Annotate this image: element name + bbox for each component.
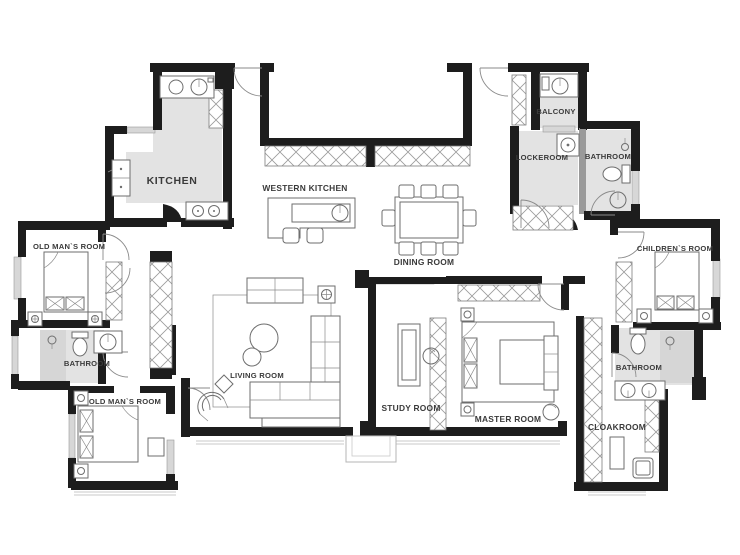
- window: [713, 259, 720, 299]
- stove-icon: [186, 202, 228, 220]
- floor-plan-canvas: KITCHEN WESTERN KITCHEN DINING ROOM OLD …: [0, 0, 740, 555]
- window-sill: [74, 492, 176, 495]
- cabinet-hatch: [375, 146, 470, 166]
- window: [632, 168, 639, 206]
- room-label-bathroom-right: BATHROOM: [616, 363, 662, 372]
- kitchen-counter-icon: [160, 76, 214, 98]
- window: [167, 440, 174, 476]
- door-arc: [538, 284, 564, 310]
- cloakroom-left-wardrobe: [584, 318, 602, 482]
- tv-bench-icon: [544, 336, 558, 390]
- living-room-furniture: [198, 278, 340, 427]
- room-label-master-room: MASTER ROOM: [475, 414, 542, 424]
- cabinet-hatch: [265, 146, 366, 166]
- old-mans-top-bed-icon: [28, 252, 102, 326]
- balcony-cabinet: [512, 75, 526, 125]
- bathroom-left-shower-floor: [40, 330, 66, 383]
- room-label-kitchen: KITCHEN: [147, 175, 198, 187]
- door-arc: [480, 68, 508, 96]
- window: [543, 126, 575, 132]
- window: [69, 414, 75, 458]
- room-label-childrens-room: CHILDREN`S ROOM: [637, 244, 713, 253]
- coffee-table-icon: [243, 324, 278, 366]
- toilet-icon: [630, 328, 646, 354]
- childrens-wardrobe: [616, 262, 632, 322]
- cloakroom-island-icon: [610, 437, 624, 469]
- room-label-old-mans-room-top: OLD MAN`S ROOM: [33, 242, 105, 251]
- master-chair-icon: [543, 404, 559, 420]
- floor-plan-drawing: KITCHEN WESTERN KITCHEN DINING ROOM OLD …: [0, 0, 740, 555]
- corridor-closet: [150, 262, 172, 368]
- room-label-bathroom-top-right: BATHROOM: [585, 152, 631, 161]
- plant-icon: [318, 286, 335, 303]
- sofa-icon: [250, 382, 340, 427]
- door-arc: [103, 234, 129, 260]
- room-label-living-room: LIVING ROOM: [230, 371, 284, 380]
- room-label-dining-room: DINING ROOM: [394, 257, 454, 267]
- island-counter-icon: [268, 198, 355, 243]
- room-label-lockeroom: LOCKEROOM: [516, 153, 568, 162]
- window: [127, 127, 155, 133]
- bathroom-right-shower-floor: [660, 331, 698, 383]
- balcony-sink-icon: [540, 74, 578, 97]
- room-label-study-room: STUDY ROOM: [381, 403, 440, 413]
- toilet-icon: [603, 165, 630, 183]
- room-label-old-mans-room-bottom: OLD MAN`S ROOM: [89, 397, 161, 406]
- room-label-western-kitchen: WESTERN KITCHEN: [262, 183, 347, 193]
- desk-icon: [398, 324, 420, 386]
- childrens-bed-icon: [637, 252, 713, 323]
- master-wardrobe: [458, 285, 540, 301]
- dining-table-icon: [382, 185, 476, 255]
- room-label-bathroom-left: BATHROOM: [64, 359, 110, 368]
- room-label-balcony: BALCONY: [536, 107, 575, 116]
- door-wedge: [163, 204, 182, 222]
- master-bed-icon: [461, 308, 554, 416]
- window-sill: [588, 492, 646, 495]
- window: [14, 257, 21, 299]
- entry-cabinet: [513, 206, 573, 230]
- door-arc: [188, 388, 210, 410]
- washbasin-icon: [94, 331, 122, 353]
- window: [12, 336, 18, 376]
- tv-cabinet-icon: [247, 278, 303, 303]
- stool-icon: [633, 458, 653, 478]
- double-vanity-icon: [615, 381, 665, 400]
- door-arc: [234, 68, 262, 96]
- window-sill: [196, 441, 344, 444]
- cloakroom-right-wardrobe: [645, 394, 659, 452]
- toilet-icon: [72, 332, 88, 356]
- window-sill: [378, 441, 560, 444]
- study-closet: [430, 318, 446, 430]
- ac-ledge: [346, 436, 396, 462]
- room-label-cloakroom: CLOAKROOM: [588, 422, 646, 432]
